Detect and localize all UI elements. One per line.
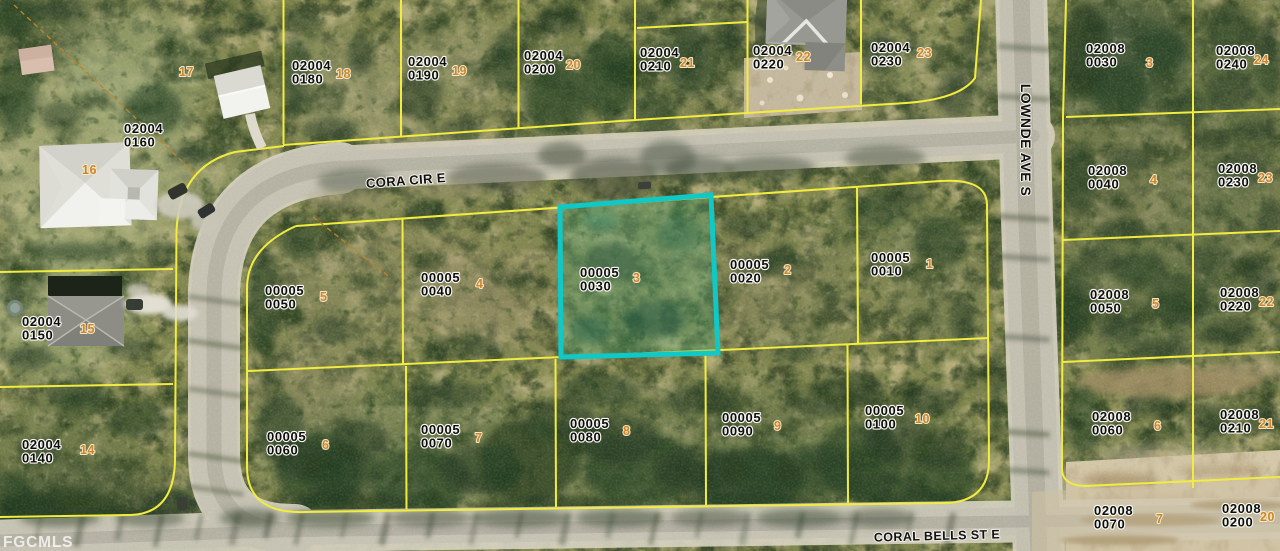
svg-text:17: 17 — [179, 65, 194, 79]
svg-text:0100: 0100 — [865, 417, 896, 432]
svg-text:22: 22 — [796, 50, 811, 64]
svg-text:0060: 0060 — [267, 443, 298, 458]
svg-text:6: 6 — [322, 438, 329, 452]
svg-text:3: 3 — [633, 271, 640, 285]
svg-text:7: 7 — [475, 431, 482, 445]
svg-text:4: 4 — [1150, 173, 1157, 187]
svg-text:0240: 0240 — [1216, 57, 1247, 72]
svg-text:20: 20 — [566, 58, 581, 72]
svg-text:0030: 0030 — [1086, 55, 1117, 70]
svg-text:7: 7 — [1156, 512, 1163, 526]
svg-text:22: 22 — [1259, 295, 1274, 309]
svg-text:24: 24 — [1254, 53, 1269, 67]
svg-text:0060: 0060 — [1092, 423, 1123, 438]
svg-text:18: 18 — [336, 67, 351, 81]
svg-text:0040: 0040 — [421, 284, 452, 299]
svg-text:0230: 0230 — [1218, 175, 1249, 190]
svg-text:10: 10 — [915, 412, 930, 426]
svg-text:2: 2 — [784, 263, 791, 277]
svg-text:0150: 0150 — [22, 328, 53, 343]
svg-text:5: 5 — [320, 290, 327, 304]
svg-text:23: 23 — [917, 46, 932, 60]
svg-text:FGCMLS: FGCMLS — [3, 534, 73, 551]
svg-text:3: 3 — [1146, 56, 1153, 70]
svg-text:6: 6 — [1154, 419, 1161, 433]
svg-text:0070: 0070 — [1094, 517, 1125, 532]
svg-text:0070: 0070 — [421, 436, 452, 451]
svg-text:14: 14 — [80, 443, 95, 457]
svg-text:4: 4 — [476, 277, 483, 291]
svg-text:21: 21 — [680, 56, 695, 70]
svg-text:19: 19 — [452, 64, 467, 78]
svg-text:0050: 0050 — [265, 297, 296, 312]
svg-text:9: 9 — [774, 419, 781, 433]
svg-text:20: 20 — [1260, 510, 1275, 524]
svg-text:0010: 0010 — [871, 264, 902, 279]
svg-text:0140: 0140 — [22, 451, 53, 466]
svg-text:0210: 0210 — [640, 59, 671, 74]
svg-text:15: 15 — [80, 322, 95, 336]
svg-text:1: 1 — [926, 257, 933, 271]
svg-text:0210: 0210 — [1220, 421, 1251, 436]
svg-text:0180: 0180 — [292, 72, 323, 87]
svg-text:LOWNDE AVE S: LOWNDE AVE S — [1018, 84, 1034, 197]
svg-text:0160: 0160 — [124, 135, 155, 150]
svg-text:0220: 0220 — [1220, 299, 1251, 314]
svg-text:0050: 0050 — [1090, 301, 1121, 316]
svg-text:0020: 0020 — [730, 271, 761, 286]
svg-text:16: 16 — [82, 163, 97, 177]
svg-text:0200: 0200 — [1222, 515, 1253, 530]
svg-text:0230: 0230 — [871, 54, 902, 69]
svg-text:0080: 0080 — [570, 430, 601, 445]
svg-text:0190: 0190 — [408, 68, 439, 83]
svg-text:0220: 0220 — [753, 57, 784, 72]
svg-text:0030: 0030 — [580, 279, 611, 294]
svg-text:0090: 0090 — [722, 424, 753, 439]
svg-text:0200: 0200 — [524, 62, 555, 77]
svg-text:8: 8 — [623, 424, 630, 438]
svg-text:0040: 0040 — [1088, 177, 1119, 192]
svg-text:23: 23 — [1258, 171, 1273, 185]
svg-text:5: 5 — [1152, 297, 1159, 311]
svg-text:21: 21 — [1259, 417, 1274, 431]
